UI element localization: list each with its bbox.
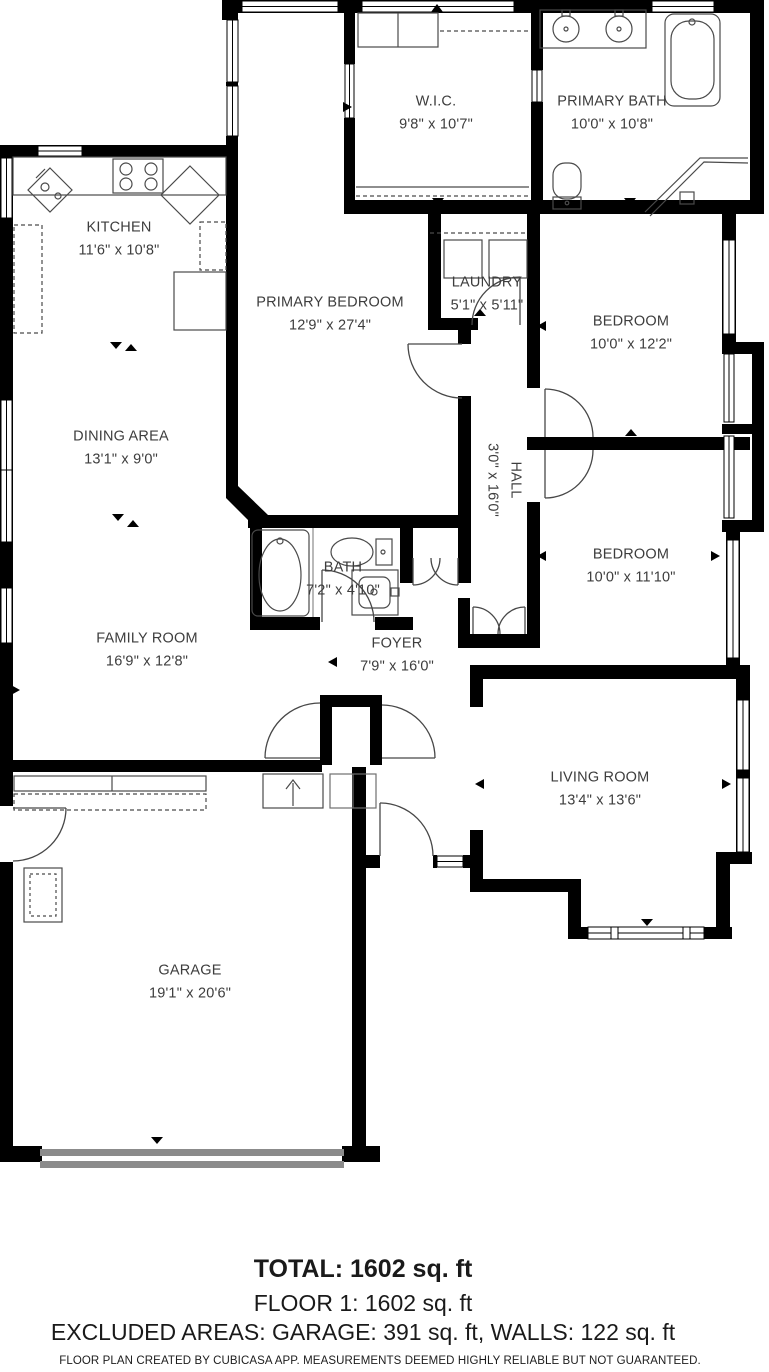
window [727, 540, 739, 658]
room-dims: 13'1" x 9'0" [73, 449, 169, 472]
room-dims: 16'9" x 12'8" [96, 651, 198, 674]
marker-arrow [11, 685, 20, 695]
lower-cabinet [14, 225, 42, 333]
hall-closet-double-door [473, 607, 525, 634]
floor-area-text: FLOOR 1: 1602 sq. ft [254, 1290, 473, 1317]
room-name: W.I.C. [416, 94, 457, 110]
marker-arrow [475, 779, 484, 789]
window [437, 856, 463, 867]
room-name: LIVING ROOM [551, 770, 650, 786]
room-name: KITCHEN [86, 220, 151, 236]
room-label-kitchen: KITCHEN 11'6" x 10'8" [78, 217, 159, 264]
kitchen-counter [13, 157, 226, 195]
window [1, 588, 12, 643]
entry-door-left [265, 703, 320, 758]
room-dims: 19'1" x 20'6" [149, 983, 231, 1006]
room-dims: 3'0" x 16'0" [480, 443, 503, 517]
room-name: DINING AREA [73, 429, 169, 445]
total-area-text: TOTAL: 1602 sq. ft [254, 1255, 473, 1284]
window [38, 146, 82, 156]
marker-arrow [112, 514, 124, 521]
room-name: BEDROOM [593, 547, 669, 563]
bedroom-door [545, 450, 593, 498]
closet-sliding-door [724, 354, 734, 422]
marker-arrow [641, 919, 653, 926]
room-dims: 7'2" x 4'10" [306, 580, 380, 603]
window [1, 158, 12, 218]
marker-arrow [127, 520, 139, 527]
room-name: PRIMARY BEDROOM [256, 295, 404, 311]
window [227, 86, 238, 136]
room-label-garage: GARAGE 19'1" x 20'6" [149, 960, 231, 1007]
room-label-foyer: FOYER 7'9" x 16'0" [360, 633, 434, 680]
closet-sliding-door [724, 436, 734, 518]
marker-arrow [328, 657, 337, 667]
garage-door [40, 1149, 344, 1168]
room-name: LAUNDRY [452, 275, 522, 291]
entry-door-right [382, 705, 435, 758]
marker-arrow [151, 1137, 163, 1144]
window [723, 240, 735, 334]
marker-arrow [711, 551, 720, 561]
window [227, 20, 238, 82]
door-opening [532, 70, 542, 102]
room-dims: 9'8" x 10'7" [399, 114, 473, 137]
room-label-dining: DINING AREA 13'1" x 9'0" [73, 426, 169, 473]
room-dims: 10'0" x 12'2" [590, 334, 672, 357]
room-label-family: FAMILY ROOM 16'9" x 12'8" [96, 628, 198, 675]
room-dims: 11'6" x 10'8" [78, 240, 159, 263]
room-name: BEDROOM [593, 314, 669, 330]
excluded-areas-text: EXCLUDED AREAS: GARAGE: 391 sq. ft, WALL… [51, 1319, 675, 1346]
window [652, 1, 714, 12]
bathtub [665, 14, 720, 106]
room-label-living: LIVING ROOM 13'4" x 13'6" [551, 767, 650, 814]
room-label-laundry: LAUNDRY 5'1" x 5'11" [451, 272, 524, 319]
marker-arrow [110, 342, 122, 349]
front-door [380, 803, 433, 856]
window [737, 700, 749, 770]
room-label-bath: BATH 7'2" x 4'10" [306, 557, 380, 604]
room-name: BATH [324, 560, 362, 576]
room-dims: 10'0" x 11'10" [586, 567, 675, 590]
marker-arrow [125, 344, 137, 351]
primary-bedroom-door [408, 344, 462, 398]
room-dims: 12'9" x 27'4" [256, 315, 404, 338]
room-dims: 7'9" x 16'0" [360, 656, 434, 679]
marker-arrow [722, 779, 731, 789]
bay-window [588, 927, 704, 939]
room-dims: 13'4" x 13'6" [551, 790, 650, 813]
room-name: FOYER [372, 636, 423, 652]
window [1, 400, 12, 542]
garage-side-door [13, 808, 66, 861]
floor-plan-page: W.I.C. 9'8" x 10'7" PRIMARY BATH 10'0" x… [0, 0, 769, 1372]
kitchen-island [174, 272, 226, 330]
floor-plan-drawing [0, 0, 769, 1372]
double-vanity [540, 10, 646, 48]
stove [113, 159, 163, 193]
wall-openings [0, 806, 13, 862]
kitchen-sink [28, 168, 72, 212]
entry-steps [263, 774, 323, 808]
bedroom-door [545, 389, 593, 437]
room-name: FAMILY ROOM [96, 631, 198, 647]
room-name: GARAGE [158, 963, 221, 979]
window [242, 1, 338, 12]
room-label-hall: HALL 3'0" x 16'0" [480, 443, 527, 517]
room-dims: 5'1" x 5'11" [451, 295, 524, 318]
disclaimer-text: FLOOR PLAN CREATED BY CUBICASA APP. MEAS… [59, 1355, 701, 1367]
entry-closet [330, 774, 376, 808]
room-label-primary-bedroom: PRIMARY BEDROOM 12'9" x 27'4" [256, 292, 404, 339]
water-heater [24, 868, 62, 922]
workbench [14, 776, 206, 810]
room-name: PRIMARY BATH [557, 94, 667, 110]
marker-arrow [625, 429, 637, 436]
room-label-bedroom-top: BEDROOM 10'0" x 12'2" [590, 311, 672, 358]
window [737, 778, 749, 852]
room-dims: 10'0" x 10'8" [557, 114, 667, 137]
room-label-wic: W.I.C. 9'8" x 10'7" [399, 91, 473, 138]
room-label-primary-bath: PRIMARY BATH 10'0" x 10'8" [557, 91, 667, 138]
upper-cabinet [200, 222, 226, 270]
room-name: HALL [507, 461, 523, 498]
room-label-bedroom-mid: BEDROOM 10'0" x 11'10" [586, 544, 675, 591]
closet-double-door [413, 558, 458, 585]
